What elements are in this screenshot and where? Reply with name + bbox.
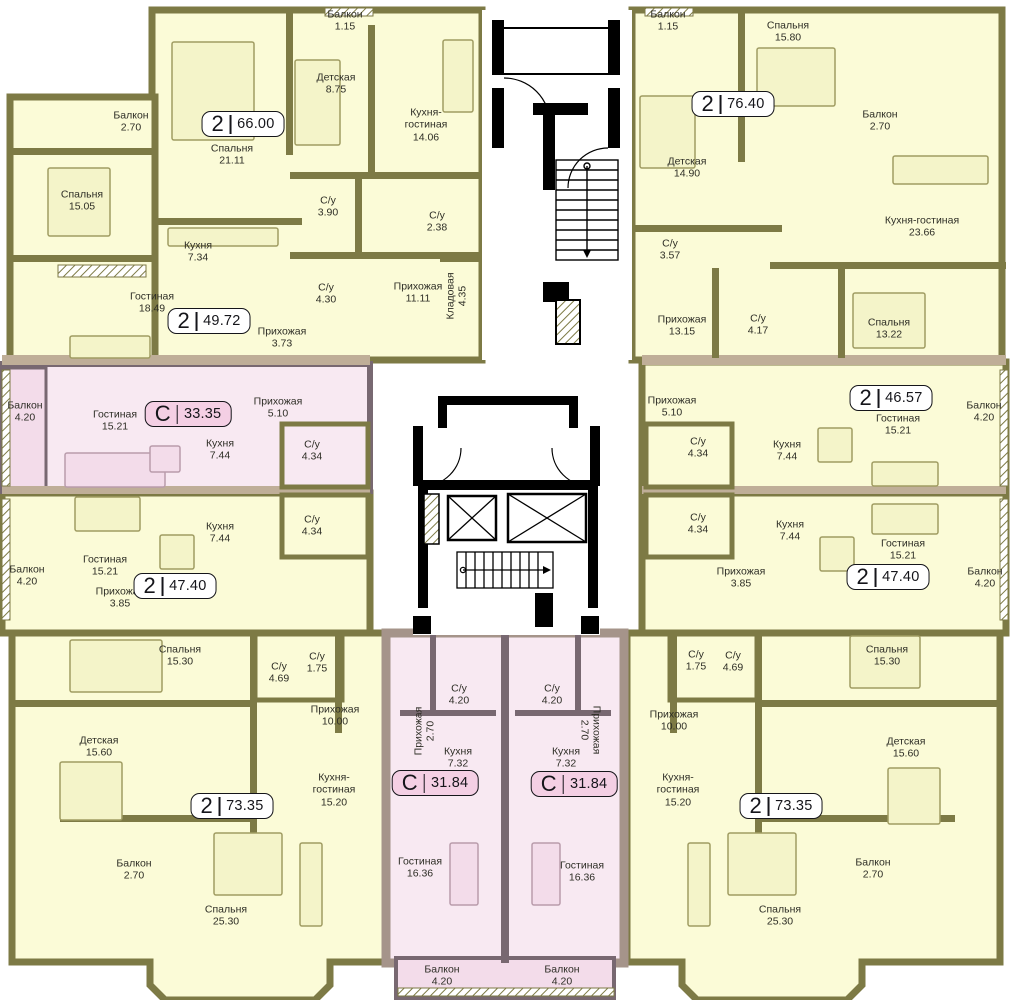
room-label: Спальня13.22 [868, 317, 910, 342]
room-area: 7.34 [184, 252, 212, 264]
room-name: Гостиная [93, 409, 137, 421]
room-label: Спальня15.05 [61, 189, 103, 214]
room-area: 7.44 [206, 450, 234, 462]
apartment-badge[interactable]: С31.84 [392, 770, 479, 796]
room-label: Гостиная15.21 [881, 538, 925, 563]
room-area: 15.20 [647, 796, 709, 808]
room-name: Прихожая [590, 706, 602, 755]
room-name: Детская [317, 72, 356, 84]
floor-plan-drawing [0, 0, 1012, 1000]
apartment-area: 47.40 [882, 569, 919, 585]
room-label: С/у4.34 [688, 512, 708, 537]
room-name: С/у [320, 195, 336, 207]
room-name: Балкон [116, 858, 151, 870]
room-name: Спальня [61, 189, 103, 201]
room-area: 3.90 [318, 207, 338, 219]
room-label: Кухня7.44 [773, 439, 801, 464]
apartment-badge[interactable]: 249.72 [168, 308, 251, 334]
room-name: С/у [725, 650, 741, 662]
room-label: С/у4.34 [302, 439, 322, 464]
room-label: Детская15.60 [80, 735, 119, 760]
badge-divider [162, 577, 163, 596]
room-label: Прихожая10.00 [650, 709, 699, 734]
badge-divider [424, 774, 425, 793]
apartment-badge[interactable]: 276.40 [692, 91, 775, 117]
apartment-badge[interactable]: 273.35 [740, 793, 823, 819]
room-name: Спальня [205, 904, 247, 916]
room-area: 13.15 [658, 326, 707, 338]
room-name: С/у [304, 439, 320, 451]
room-name: Кухня-гостиная [885, 215, 959, 227]
room-label: С/у4.69 [269, 661, 289, 686]
room-area: 2.70 [425, 707, 437, 756]
apartment-type: 2 [178, 310, 190, 332]
room-label: Прихожая2.70 [578, 706, 603, 755]
room-label: Балкон4.20 [966, 400, 1001, 425]
room-area: 4.20 [544, 976, 579, 988]
room-area: 15.21 [881, 550, 925, 562]
badge-divider [720, 95, 721, 114]
room-name: Балкон [862, 109, 897, 121]
apartment-area: 49.72 [203, 313, 240, 329]
room-label: Балкон2.70 [862, 109, 897, 134]
elevator-core [413, 385, 600, 635]
room-name: Кухня [184, 240, 212, 252]
room-name: Гостиная [83, 554, 127, 566]
room-name: Спальня [159, 644, 201, 656]
room-label: С/у4.20 [449, 683, 469, 708]
room-name: Кухня [776, 519, 804, 531]
room-label: Гостиная15.21 [876, 413, 920, 438]
room-name: Прихожая [413, 707, 425, 756]
apartment-area: 66.00 [237, 116, 274, 132]
room-label: Кухня-гостиная14.06 [394, 106, 458, 143]
badge-divider [768, 797, 769, 816]
apartment-badge[interactable]: 246.57 [850, 385, 933, 411]
room-name: С/у [662, 238, 678, 250]
room-name: Балкон [9, 564, 44, 576]
room-label: Балкон1.15 [650, 9, 685, 34]
room-name: Балкон [650, 9, 685, 21]
elevator-shafts-icon [448, 494, 586, 542]
room-area: 4.20 [967, 578, 1002, 590]
room-name: Детская [80, 735, 119, 747]
room-area: 15.21 [93, 421, 137, 433]
room-name: Спальня [759, 904, 801, 916]
room-label: Спальня15.30 [159, 644, 201, 669]
room-name: С/у [544, 683, 560, 695]
room-label: Прихожая11.11 [394, 281, 443, 306]
room-label: Кухня7.44 [206, 521, 234, 546]
apartment-badge[interactable]: С33.35 [145, 401, 232, 427]
room-name: С/у [271, 661, 287, 673]
room-name: Кладовая [445, 272, 457, 319]
room-name: Спальня [868, 317, 910, 329]
room-label: С/у4.69 [723, 650, 743, 675]
room-area: 4.20 [449, 695, 469, 707]
room-label: С/у4.34 [688, 436, 708, 461]
room-label: Балкон2.70 [855, 857, 890, 882]
room-label: С/у4.30 [316, 282, 336, 307]
apartment-type: С [541, 773, 557, 795]
room-area: 4.20 [542, 695, 562, 707]
badge-divider [196, 312, 197, 331]
badge-divider [563, 775, 564, 794]
room-area: 2.70 [855, 869, 890, 881]
room-name: Гостиная [876, 413, 920, 425]
room-label: Балкон1.15 [327, 9, 362, 34]
room-area: 11.11 [394, 293, 443, 305]
room-name: С/у [750, 313, 766, 325]
room-label: Спальня15.30 [866, 644, 908, 669]
apartment-type: С [402, 772, 418, 794]
room-name: Балкон [544, 964, 579, 976]
room-area: 4.34 [688, 448, 708, 460]
room-area: 4.30 [316, 294, 336, 306]
room-name: Прихожая [311, 704, 360, 716]
room-label: Кухня7.34 [184, 240, 212, 265]
stair-core-top [482, 10, 632, 360]
floor-plan: Балкон2.70Спальня15.05Спальня21.11Кухня7… [0, 0, 1012, 1000]
room-area: 25.30 [205, 916, 247, 928]
room-area: 8.75 [317, 84, 356, 96]
room-area: 3.85 [717, 578, 766, 590]
room-label: Балкон4.20 [9, 564, 44, 589]
room-area: 23.66 [866, 227, 978, 239]
room-name: Спальня [767, 20, 809, 32]
room-area: 13.22 [868, 329, 910, 341]
room-name: Спальня [866, 644, 908, 656]
room-area: 7.44 [206, 533, 234, 545]
room-name: С/у [309, 651, 325, 663]
apartment-area: 47.40 [169, 578, 206, 594]
room-area: 14.06 [394, 131, 458, 143]
room-label: С/у2.38 [427, 210, 447, 235]
room-area: 15.80 [767, 32, 809, 44]
room-area: 4.20 [7, 412, 42, 424]
room-label: Кухня-гостиная15.20 [303, 771, 365, 808]
room-label: Кухня7.44 [206, 438, 234, 463]
room-area: 1.75 [686, 661, 706, 673]
room-name: Кухня [552, 746, 580, 758]
room-label: Прихожая5.10 [648, 395, 697, 420]
room-label: Гостиная16.36 [398, 856, 442, 881]
apartment-badge[interactable]: 266.00 [202, 111, 285, 137]
room-label: Прихожая10.00 [311, 704, 360, 729]
room-area: 4.69 [723, 662, 743, 674]
room-name: Детская [668, 156, 707, 168]
room-label: С/у3.57 [660, 238, 680, 263]
room-area: 7.32 [552, 758, 580, 770]
room-area: 10.00 [311, 716, 360, 728]
room-label: Балкон4.20 [544, 964, 579, 989]
room-area: 10.00 [650, 721, 699, 733]
room-name: Гостиная [130, 291, 174, 303]
room-label: Спальня25.30 [759, 904, 801, 929]
room-name: Балкон [855, 857, 890, 869]
room-label: Гостиная15.21 [93, 409, 137, 434]
apartment-badge[interactable]: 247.40 [847, 564, 930, 590]
room-label: Кухня7.44 [776, 519, 804, 544]
apartment-area: 46.57 [885, 390, 922, 406]
room-area: 15.21 [83, 566, 127, 578]
room-name: Прихожая [658, 314, 707, 326]
room-area: 3.85 [96, 598, 145, 610]
badge-divider [230, 115, 231, 134]
room-label: Балкон4.20 [967, 566, 1002, 591]
apartment-type: 2 [212, 113, 224, 135]
room-area: 15.30 [159, 656, 201, 668]
room-label: Балкон4.20 [424, 964, 459, 989]
room-name: Спальня [211, 143, 253, 155]
room-label: С/у4.20 [542, 683, 562, 708]
room-name: Балкон [113, 110, 148, 122]
room-name: Кухня [206, 521, 234, 533]
room-area: 2.38 [427, 222, 447, 234]
apartment-badge[interactable]: 247.40 [134, 573, 217, 599]
room-area: 1.15 [650, 21, 685, 33]
room-name: С/у [690, 436, 706, 448]
room-area: 2.70 [862, 121, 897, 133]
room-area: 4.20 [424, 976, 459, 988]
room-area: 7.44 [776, 531, 804, 543]
room-label: С/у3.90 [318, 195, 338, 220]
room-area: 15.20 [303, 796, 365, 808]
apartment-type: 2 [144, 575, 156, 597]
room-area: 2.70 [113, 122, 148, 134]
badge-divider [177, 405, 178, 424]
room-name: Прихожая [648, 395, 697, 407]
room-label: С/у4.17 [748, 313, 768, 338]
room-name: Балкон [327, 9, 362, 21]
room-name: Детская [887, 736, 926, 748]
room-name: С/у [688, 649, 704, 661]
room-label: Прихожая3.85 [717, 566, 766, 591]
apartment-area: 31.84 [570, 776, 607, 792]
room-name: Кухня [206, 438, 234, 450]
apartment-area: 73.35 [775, 798, 812, 814]
room-area: 4.69 [269, 673, 289, 685]
apartment-type: С [155, 403, 171, 425]
apartment-area: 33.35 [184, 406, 221, 422]
room-name: Балкон [966, 400, 1001, 412]
room-area: 16.36 [560, 872, 604, 884]
room-name: Прихожая [717, 566, 766, 578]
room-name: Прихожая [650, 709, 699, 721]
room-area: 7.32 [444, 758, 472, 770]
room-area: 3.73 [258, 338, 307, 350]
room-label: Балкон2.70 [116, 858, 151, 883]
room-name: Гостиная [560, 860, 604, 872]
room-area: 4.34 [688, 524, 708, 536]
apartment-type: 2 [201, 795, 213, 817]
room-label: Кухня-гостиная23.66 [866, 215, 978, 240]
room-name: Балкон [424, 964, 459, 976]
apartment-type: 2 [857, 566, 869, 588]
room-label: Детская15.60 [887, 736, 926, 761]
room-area: 14.90 [668, 168, 707, 180]
room-name: С/у [690, 512, 706, 524]
room-label: Кухня-гостиная15.20 [647, 771, 709, 808]
room-name: Кухня-гостиная [405, 106, 448, 130]
room-area: 15.05 [61, 201, 103, 213]
room-name: Кухня [773, 439, 801, 451]
room-name: Прихожая [254, 396, 303, 408]
room-area: 21.11 [211, 155, 253, 167]
apartment-area: 31.84 [431, 775, 468, 791]
room-label: Гостиная16.36 [560, 860, 604, 885]
apartment-area: 73.35 [226, 798, 263, 814]
room-label: Прихожая5.10 [254, 396, 303, 421]
apartment-area: 76.40 [727, 96, 764, 112]
room-area: 15.60 [80, 747, 119, 759]
apartment-badge[interactable]: 273.35 [191, 793, 274, 819]
room-area: 4.17 [748, 325, 768, 337]
apartment-type: 2 [750, 795, 762, 817]
room-label: Прихожая13.15 [658, 314, 707, 339]
room-label: Спальня15.80 [767, 20, 809, 45]
room-area: 15.30 [866, 656, 908, 668]
room-name: Балкон [967, 566, 1002, 578]
room-label: Кухня7.32 [552, 746, 580, 771]
room-label: Прихожая2.70 [413, 707, 438, 756]
room-name: С/у [304, 514, 320, 526]
room-area: 4.34 [302, 451, 322, 463]
room-label: Балкон4.20 [7, 400, 42, 425]
room-area: 16.36 [398, 868, 442, 880]
room-area: 4.35 [457, 272, 469, 319]
room-area: 4.20 [9, 576, 44, 588]
room-label: Спальня25.30 [205, 904, 247, 929]
badge-divider [878, 389, 879, 408]
room-label: Детская14.90 [668, 156, 707, 181]
room-name: Кухня-гостиная [657, 771, 700, 795]
room-area: 1.75 [307, 663, 327, 675]
room-name: Прихожая [394, 281, 443, 293]
room-area: 25.30 [759, 916, 801, 928]
room-area: 4.20 [966, 412, 1001, 424]
room-label: Спальня21.11 [211, 143, 253, 168]
room-label: С/у1.75 [686, 649, 706, 674]
room-area: 15.60 [887, 748, 926, 760]
room-area: 3.57 [660, 250, 680, 262]
room-name: Прихожая [258, 326, 307, 338]
room-area: 7.44 [773, 451, 801, 463]
room-name: С/у [429, 210, 445, 222]
room-name: С/у [318, 282, 334, 294]
room-area: 5.10 [648, 407, 697, 419]
apartment-badge[interactable]: С31.84 [531, 771, 618, 797]
room-name: С/у [451, 683, 467, 695]
room-area: 2.70 [116, 870, 151, 882]
room-label: Гостиная15.21 [83, 554, 127, 579]
apartment-type: 2 [860, 387, 872, 409]
room-area: 5.10 [254, 408, 303, 420]
room-name: Гостиная [881, 538, 925, 550]
room-label: Кухня7.32 [444, 746, 472, 771]
room-label: Гостиная18.49 [130, 291, 174, 316]
room-label: Детская8.75 [317, 72, 356, 97]
room-label: Прихожая3.73 [258, 326, 307, 351]
room-name: Кухня-гостиная [313, 771, 356, 795]
badge-divider [219, 797, 220, 816]
room-label: С/у4.34 [302, 514, 322, 539]
room-label: С/у1.75 [307, 651, 327, 676]
room-name: Балкон [7, 400, 42, 412]
room-area: 4.34 [302, 526, 322, 538]
room-name: Гостиная [398, 856, 442, 868]
badge-divider [875, 568, 876, 587]
room-area: 15.21 [876, 425, 920, 437]
room-name: Кухня [444, 746, 472, 758]
apartment-type: 2 [702, 93, 714, 115]
room-area: 1.15 [327, 21, 362, 33]
room-label: Кладовая4.35 [445, 272, 470, 319]
room-label: Балкон2.70 [113, 110, 148, 135]
